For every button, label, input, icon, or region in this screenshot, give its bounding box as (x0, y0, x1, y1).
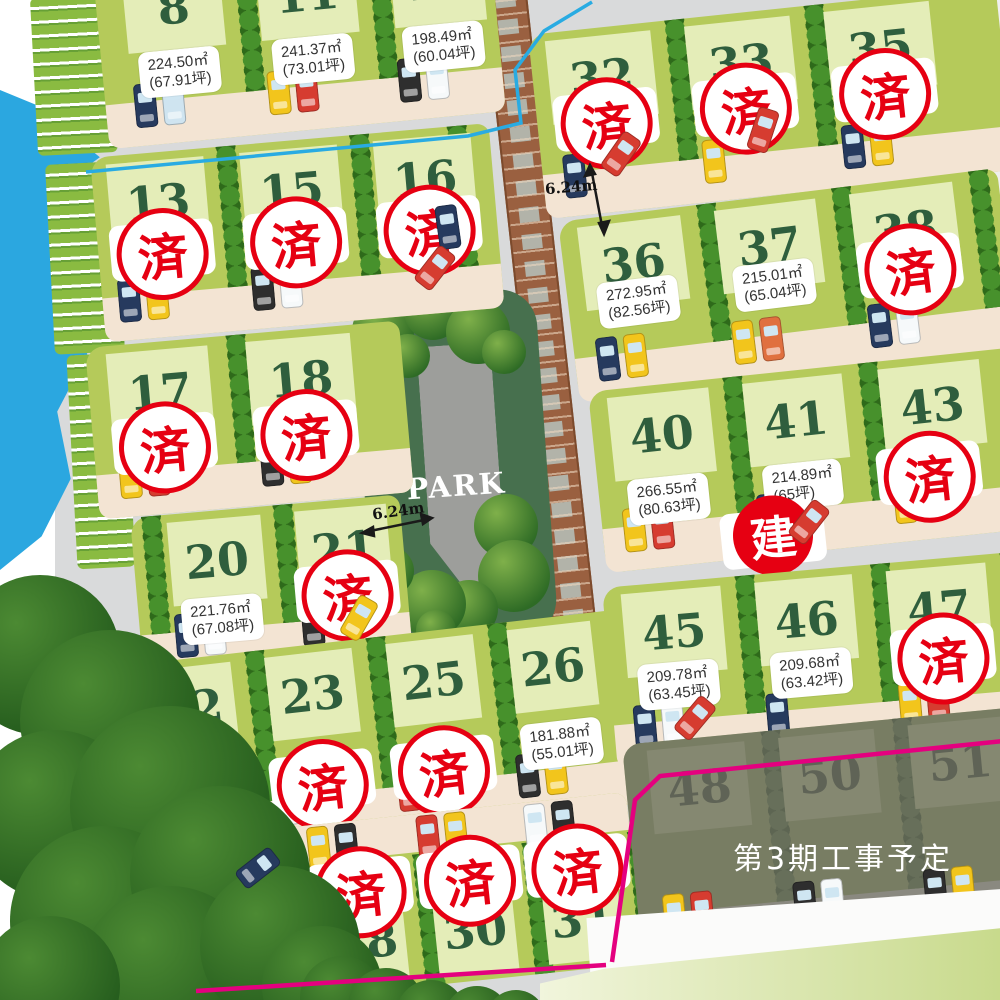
lot-11[interactable]: 11241.37㎡(73.01坪) (243, 0, 378, 135)
lot-block-17-18: 17済18済 (85, 321, 414, 520)
car-windshield (338, 832, 353, 843)
lot-number-panel: 25 (385, 634, 482, 727)
park-tree-icon (482, 330, 526, 374)
lot-area-label: 215.01㎡(65.04坪) (732, 257, 818, 312)
lot-number: 23 (264, 648, 361, 741)
car-rear-window (847, 155, 862, 163)
car-windshield (567, 162, 582, 173)
lot-number: 41 (742, 373, 850, 467)
car-rear-window (602, 367, 617, 376)
car-rear-window (257, 297, 272, 305)
car-windshield (310, 835, 325, 846)
car-rear-window (656, 535, 671, 543)
lot-35[interactable]: 35済 (812, 0, 957, 189)
car-rear-window (403, 88, 418, 96)
car-windshield (797, 890, 812, 901)
lot-17[interactable]: 17済 (95, 336, 232, 518)
lot-40[interactable]: 40266.55㎡(80.63坪) (596, 378, 736, 572)
car-windshield (420, 823, 435, 834)
car-rear-window (522, 784, 537, 793)
car-windshield (770, 702, 785, 713)
car-windshield (555, 809, 570, 820)
car-rear-window (875, 152, 890, 160)
car-windshield (927, 877, 942, 888)
lot-area-label: 266.55㎡(80.63坪) (626, 472, 711, 526)
car-windshield (439, 213, 454, 225)
car-rear-window (241, 868, 255, 883)
car-rear-window (273, 101, 288, 109)
lot-25[interactable]: 25済 (374, 625, 503, 831)
lot-43[interactable]: 43267.93㎡(81.05坪)済 (866, 350, 1000, 544)
lot-number-panel: 41 (742, 373, 850, 467)
car-icon (730, 319, 757, 365)
car-rear-window (902, 330, 917, 339)
lot-number-panel: 26 (506, 621, 599, 714)
lot-26[interactable]: 26181.88㎡(55.01坪) (496, 612, 621, 818)
lot-8[interactable]: 8224.50㎡(67.91坪) (110, 0, 245, 147)
car-windshield (692, 704, 709, 721)
car-windshield (354, 603, 371, 619)
car-rear-window (708, 169, 723, 177)
car-icon (594, 336, 621, 382)
car-windshield (637, 713, 652, 724)
lot-13[interactable]: 13済 (95, 147, 229, 342)
lot-area-label: 209.68㎡(63.42坪) (769, 647, 853, 700)
car-rear-window (874, 334, 889, 343)
car-windshield (805, 507, 822, 523)
car-rear-window (140, 114, 155, 122)
car-windshield (757, 115, 773, 129)
lot-area-label: 181.88㎡(55.01坪) (519, 716, 604, 771)
subdivision-lot-map: PARK 8224.50㎡(67.91坪)11241.37㎡(73.01坪)12… (0, 0, 1000, 1000)
car-rear-window (123, 308, 138, 316)
car-rear-window (738, 350, 753, 359)
car-windshield (448, 820, 463, 831)
car-rear-window (442, 235, 457, 244)
lot-38[interactable]: 38済 (838, 173, 983, 369)
phase3-label: 第3期工事予定 (678, 834, 1000, 878)
lot-18[interactable]: 18済 (234, 324, 374, 506)
lot-36[interactable]: 36272.95㎡(82.56坪) (566, 206, 711, 402)
lot-area-label: 272.95㎡(82.56坪) (596, 274, 682, 329)
car-rear-window (550, 781, 565, 790)
car-rear-window (606, 157, 621, 171)
car-windshield (871, 312, 886, 324)
car-icon (622, 332, 649, 378)
car-rear-window (679, 720, 694, 734)
car-rear-window (629, 538, 644, 546)
lot-number-panel: 23 (264, 648, 361, 741)
lot-15[interactable]: 15済 (228, 136, 362, 331)
car-rear-window (265, 473, 280, 481)
car-rear-window (301, 98, 316, 106)
car-windshield (825, 887, 840, 898)
car-rear-window (420, 271, 435, 285)
lot-area-label: 221.76㎡(67.08坪) (180, 593, 264, 646)
lot-number: 40 (607, 387, 717, 481)
car-rear-window (766, 347, 781, 356)
car-rear-window (167, 111, 182, 119)
lot-37[interactable]: 37215.01㎡(65.04坪) (703, 189, 846, 385)
car-windshield (256, 854, 272, 871)
lot-33[interactable]: 33済 (673, 7, 818, 204)
car-rear-window (431, 86, 446, 94)
car-rear-window (345, 622, 361, 635)
lot-number: 26 (506, 621, 599, 714)
car-rear-window (307, 633, 322, 641)
car-icon (758, 316, 785, 362)
car-rear-window (794, 525, 809, 539)
lot-area-label: 198.49㎡(60.04坪) (401, 20, 486, 74)
car-rear-window (124, 485, 139, 493)
lot-number: 25 (385, 634, 482, 727)
car-windshield (627, 342, 642, 354)
lot-12[interactable]: 12198.49㎡(60.04坪) (377, 0, 506, 122)
car-rear-window (285, 294, 300, 302)
car-windshield (763, 325, 778, 337)
lot-30[interactable]: 30済 (413, 804, 530, 986)
car-rear-window (180, 644, 195, 652)
car-windshield (736, 328, 751, 340)
car-windshield (845, 133, 860, 144)
lot-area-label: 241.37㎡(73.01坪) (271, 32, 356, 86)
car-windshield (431, 253, 448, 269)
car-windshield (600, 345, 615, 357)
car-rear-window (751, 136, 766, 147)
lot-area-label: 224.50㎡(67.91坪) (137, 45, 222, 99)
car-windshield (617, 139, 634, 155)
car-windshield (706, 148, 721, 159)
car-rear-window (151, 306, 166, 314)
car-rear-window (630, 364, 645, 373)
lot-number-panel: 40 (607, 387, 717, 481)
car-windshield (527, 812, 542, 823)
